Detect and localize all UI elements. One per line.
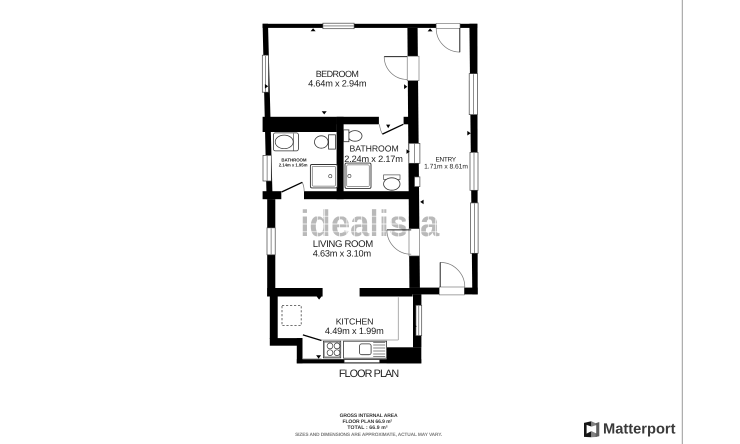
- svg-text:BATHROOM: BATHROOM: [350, 143, 399, 153]
- svg-text:SIZES AND DIMENSIONS ARE APPRO: SIZES AND DIMENSIONS ARE APPROXIMATE, AC…: [295, 432, 442, 438]
- svg-text:Matterport: Matterport: [603, 422, 676, 438]
- svg-text:1.71m x 8.61m: 1.71m x 8.61m: [424, 163, 468, 170]
- svg-text:4.64m x 2.94m: 4.64m x 2.94m: [308, 78, 367, 88]
- svg-text:4.63m x 3.10m: 4.63m x 3.10m: [313, 249, 372, 259]
- svg-text:BEDROOM: BEDROOM: [316, 69, 359, 79]
- svg-text:2.24m x 2.17m: 2.24m x 2.17m: [344, 154, 403, 164]
- svg-text:2.14m x 1.95m: 2.14m x 1.95m: [279, 162, 308, 167]
- svg-text:GROSS INTERNAL AREA: GROSS INTERNAL AREA: [340, 413, 398, 419]
- svg-text:4.49m x 1.99m: 4.49m x 1.99m: [325, 326, 384, 336]
- svg-text:TOTAL : 66.9 m²: TOTAL : 66.9 m²: [347, 425, 387, 431]
- svg-text:FLOOR PLAN: FLOOR PLAN: [339, 368, 399, 380]
